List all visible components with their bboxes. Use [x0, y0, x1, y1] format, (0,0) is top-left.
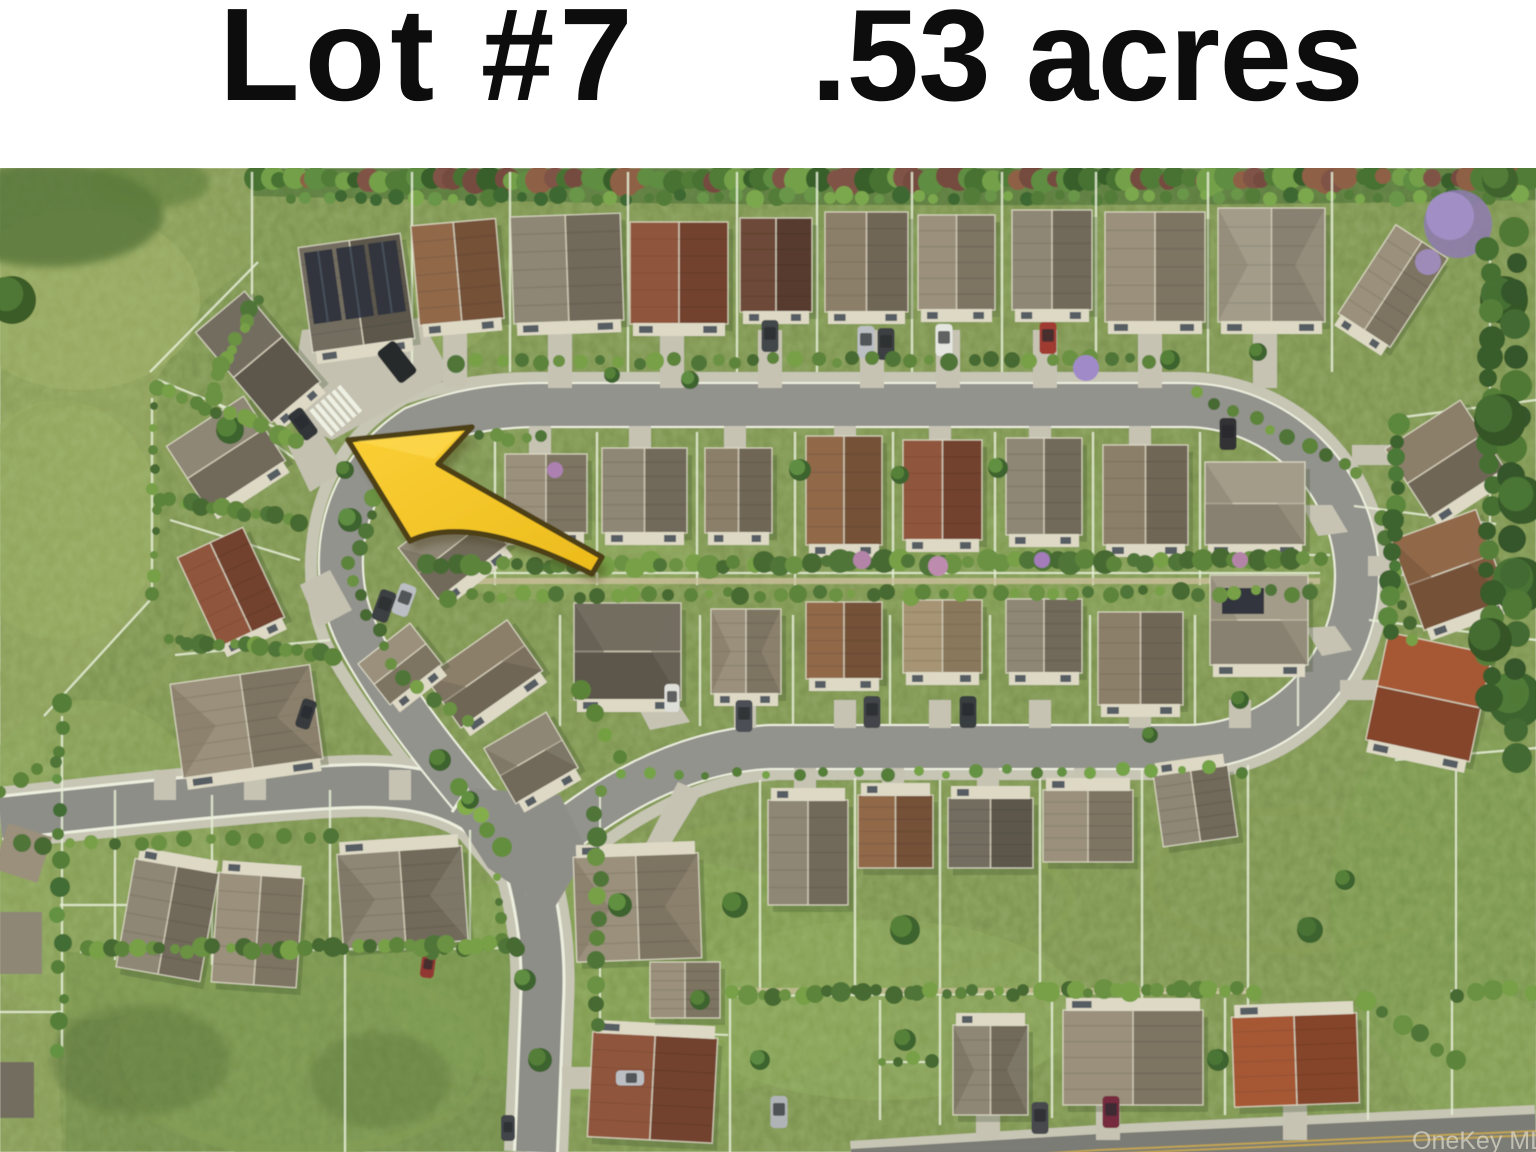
- svg-text:OneKey ML: OneKey ML: [1412, 1127, 1536, 1152]
- svg-text:.53 acres: .53 acres: [811, 0, 1363, 128]
- svg-text:Lot #7: Lot #7: [219, 0, 638, 128]
